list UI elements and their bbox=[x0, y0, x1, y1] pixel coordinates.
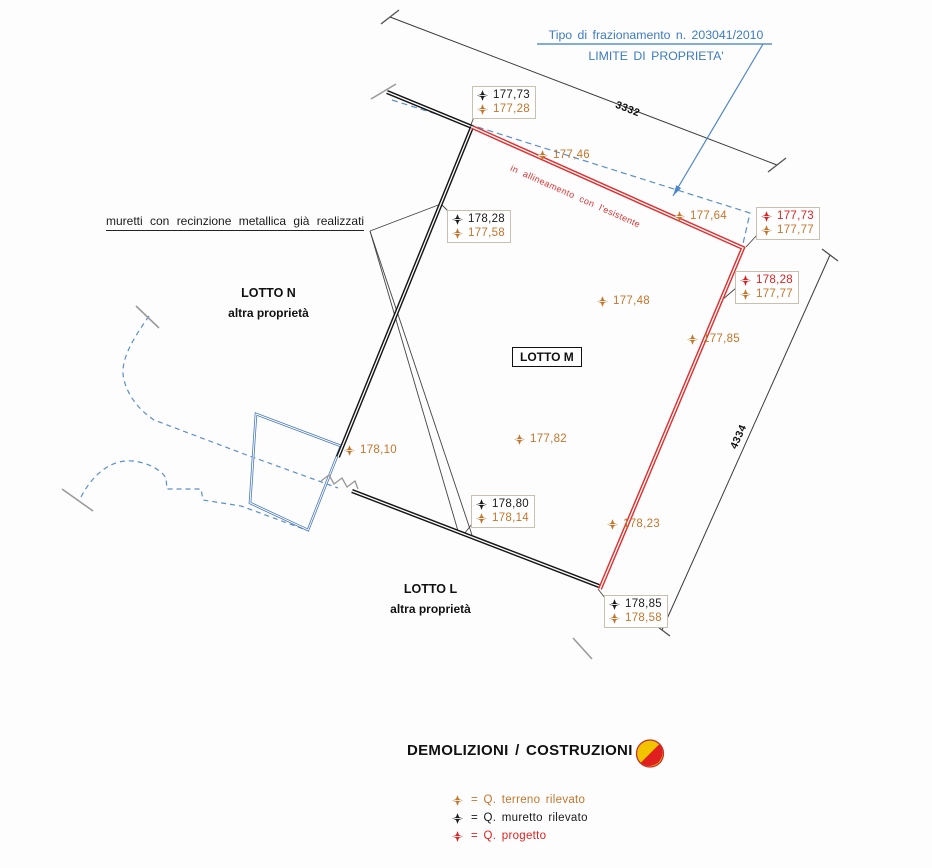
terreno-point-icon bbox=[740, 289, 751, 300]
legend-title: DEMOLIZIONI / COSTRUZIONI bbox=[407, 742, 633, 759]
muretto-point-icon bbox=[476, 499, 487, 510]
terreno-point-icon bbox=[537, 150, 548, 161]
elevation-value: 177,82 bbox=[530, 433, 567, 445]
terreno-point-icon bbox=[452, 228, 463, 239]
terreno-point-icon bbox=[452, 795, 463, 806]
lot-m-label: LOTTO M bbox=[512, 347, 582, 367]
elevation-value: 177,64 bbox=[690, 210, 727, 222]
elevation-box-4: 178,28 177,77 bbox=[735, 271, 799, 304]
elevation-box-2: 178,28 177,58 bbox=[447, 210, 511, 243]
elevation-value: 177,73 bbox=[493, 88, 530, 102]
elevation-value: 178,28 bbox=[468, 212, 505, 226]
elevation-box-3: 177,73 177,77 bbox=[756, 207, 820, 240]
terreno-point-icon bbox=[609, 613, 620, 624]
progetto-point-icon bbox=[740, 275, 751, 286]
elevation-value: 177,48 bbox=[613, 295, 650, 307]
terreno-point-icon bbox=[476, 513, 487, 524]
leader-muretti-2 bbox=[370, 231, 458, 531]
elevation-value: 177,73 bbox=[777, 209, 814, 223]
elevation-value: 178,58 bbox=[625, 611, 662, 625]
progetto-point-icon bbox=[452, 831, 463, 842]
dim-tick bbox=[768, 158, 786, 172]
note-muretti: muretti con recinzione metallica già rea… bbox=[106, 214, 364, 231]
lot-n-sub: altra proprietà bbox=[196, 304, 341, 324]
elevation-value: 178,28 bbox=[756, 273, 793, 287]
lot-n-label: LOTTO N altra proprietà bbox=[196, 283, 341, 323]
muretto-point-icon bbox=[477, 90, 488, 101]
terreno-point-icon bbox=[477, 104, 488, 115]
elevation-value: 177,85 bbox=[703, 333, 740, 345]
elevation-value: 177,77 bbox=[756, 287, 793, 301]
legend-item-label: = Q. terreno rilevato bbox=[471, 794, 585, 806]
legend-item-progetto: = Q. progetto bbox=[452, 827, 588, 845]
elevation-value: 178,23 bbox=[623, 518, 660, 530]
existing-boundary-dashed-1 bbox=[123, 316, 338, 488]
elevation-value: 177,28 bbox=[493, 102, 530, 116]
point-label-5: 178,10 bbox=[344, 444, 397, 456]
muretto-point-icon bbox=[452, 813, 463, 824]
survey-plan: Tipo di frazionamento n. 203041/2010 LIM… bbox=[0, 0, 932, 868]
elevation-value: 178,85 bbox=[625, 597, 662, 611]
point-label-7: 178,23 bbox=[607, 518, 660, 530]
terreno-point-icon bbox=[514, 434, 525, 445]
lot-l-label: LOTTO L altra proprietà bbox=[358, 579, 503, 619]
elevation-value: 177,77 bbox=[777, 223, 814, 237]
tick bbox=[573, 638, 592, 659]
existing-boundary-dashed-2 bbox=[81, 461, 309, 531]
elevation-box-1: 177,73 177,28 bbox=[472, 86, 536, 119]
point-label-6: 177,82 bbox=[514, 433, 567, 445]
point-label-2: 177,64 bbox=[674, 210, 727, 222]
elevation-box-6: 178,85 178,58 bbox=[604, 595, 668, 628]
lot-n-name: LOTTO N bbox=[196, 283, 341, 304]
tick bbox=[371, 84, 396, 99]
leader-muretti-3 bbox=[370, 231, 473, 538]
terreno-point-icon bbox=[687, 334, 698, 345]
terreno-point-icon bbox=[607, 519, 618, 530]
elevation-value: 178,80 bbox=[492, 497, 529, 511]
lot-l-sub: altra proprietà bbox=[358, 600, 503, 620]
muretto-point-icon bbox=[609, 599, 620, 610]
dim-tick bbox=[381, 10, 399, 24]
wall-top-core bbox=[387, 92, 472, 127]
elevation-value: 178,14 bbox=[492, 511, 529, 525]
elevation-value: 177,46 bbox=[553, 149, 590, 161]
demolizioni-costruzioni-icon bbox=[637, 740, 664, 767]
wall-west-core bbox=[338, 127, 472, 457]
terreno-point-icon bbox=[674, 211, 685, 222]
tick bbox=[62, 489, 93, 511]
legend-item-label: = Q. muretto rilevato bbox=[471, 812, 588, 824]
lot-l-name: LOTTO L bbox=[358, 579, 503, 600]
legend: = Q. terreno rilevato = Q. muretto rilev… bbox=[452, 791, 588, 845]
limite-leader-line bbox=[673, 44, 763, 196]
legend-item-muretto: = Q. muretto rilevato bbox=[452, 809, 588, 827]
terreno-point-icon bbox=[597, 296, 608, 307]
terreno-point-icon bbox=[344, 445, 355, 456]
point-label-1: 177,46 bbox=[537, 149, 590, 161]
legend-item-label: = Q. progetto bbox=[471, 830, 546, 842]
elevation-value: 178,10 bbox=[360, 444, 397, 456]
dimension-line-right bbox=[662, 255, 830, 630]
progetto-point-icon bbox=[761, 211, 772, 222]
elevation-box-5: 178,80 178,14 bbox=[471, 495, 535, 528]
title-limite-proprieta: LIMITE DI PROPRIETA' bbox=[536, 49, 776, 63]
plan-linework bbox=[0, 0, 932, 868]
elevation-value: 177,58 bbox=[468, 226, 505, 240]
terreno-point-icon bbox=[761, 225, 772, 236]
point-label-3: 177,48 bbox=[597, 295, 650, 307]
title-frazionamento: Tipo di frazionamento n. 203041/2010 bbox=[536, 28, 776, 42]
legend-item-terreno: = Q. terreno rilevato bbox=[452, 791, 588, 809]
muretto-point-icon bbox=[452, 214, 463, 225]
point-label-4: 177,85 bbox=[687, 333, 740, 345]
dim-tick bbox=[822, 249, 838, 261]
tick bbox=[136, 306, 159, 328]
